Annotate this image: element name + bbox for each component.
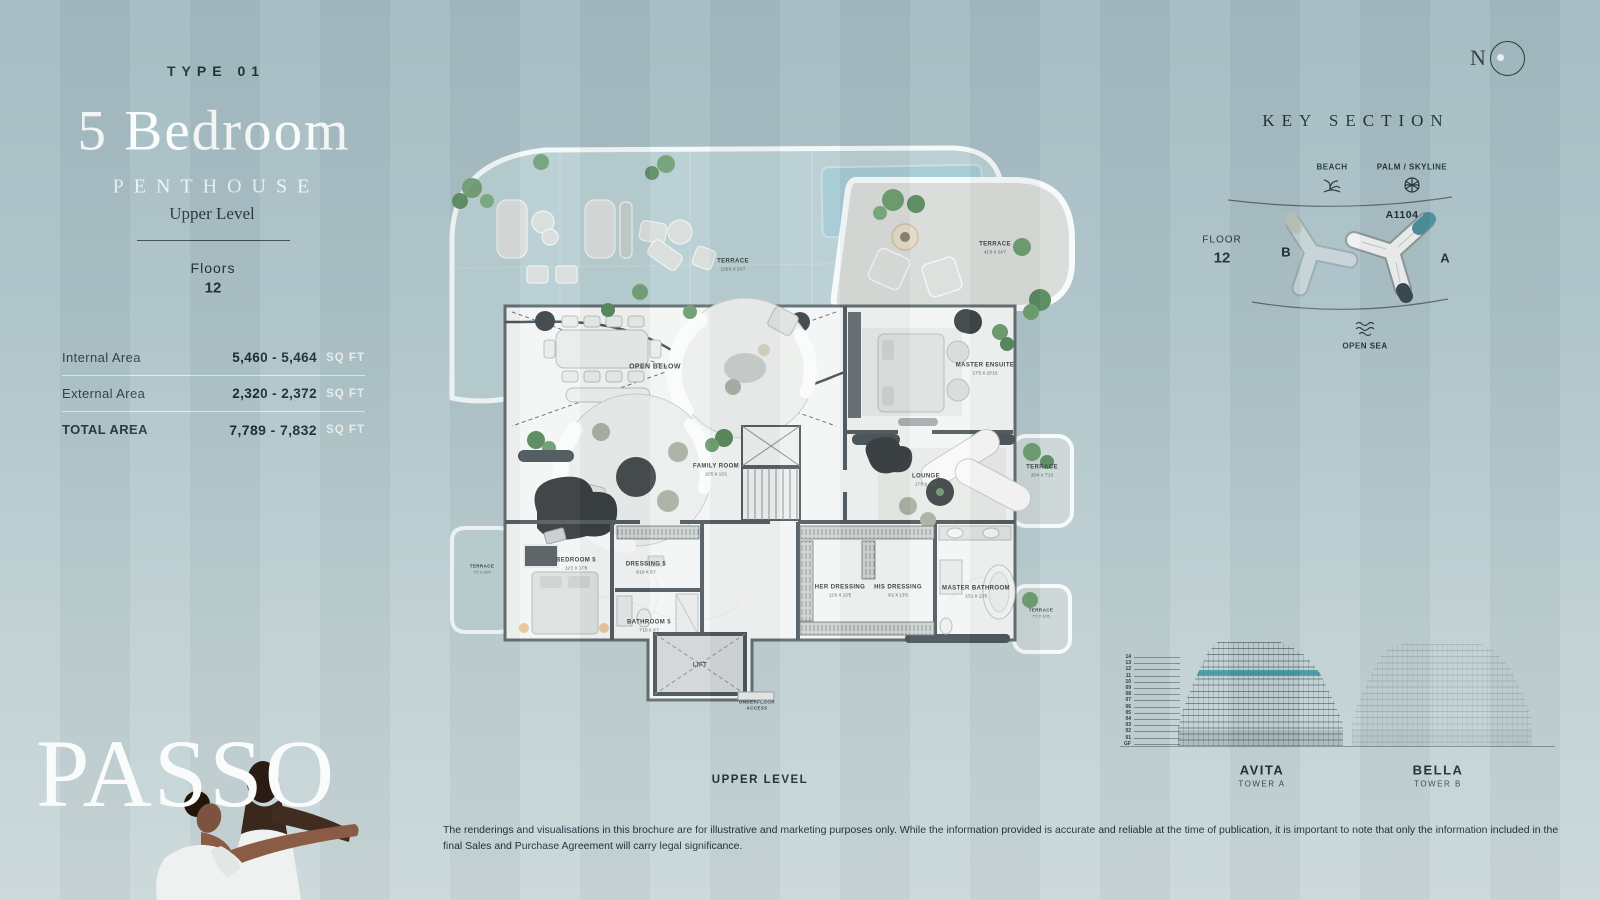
planter xyxy=(535,311,555,331)
sitting-circle-upper xyxy=(674,298,815,438)
table-row-internal: Internal Area 5,460 - 5,464 SQ FT xyxy=(62,340,365,375)
highlighted-floor-band xyxy=(1191,670,1336,676)
compass-dot xyxy=(1497,54,1504,61)
room-label-her-dressing: HER DRESSING 12'6 X 13'5 xyxy=(815,584,865,597)
tower-b-footprint xyxy=(1291,219,1350,288)
table-row-total: TOTAL AREA 7,789 - 7,832 SQ FT xyxy=(62,412,365,447)
key-floor-value: 12 xyxy=(1214,250,1231,267)
room-label-lounge: LOUNGE 17'5 X 15'1 xyxy=(912,473,940,486)
area-table: Internal Area 5,460 - 5,464 SQ FT Extern… xyxy=(62,340,365,447)
internal-area-value: 5,460 - 5,464 xyxy=(212,350,317,365)
room-label-terrace-left: TERRACE 7'2 X 16'5 xyxy=(470,564,495,575)
room-label-master-bathroom: MASTER BATHROOM 13'1 X 13'5 xyxy=(942,585,1010,598)
floors-label: Floors xyxy=(191,260,236,276)
room-label-bathroom-5: BATHROOM 5 7'10 X 6'7 xyxy=(627,619,671,632)
brand-logo: PASSO xyxy=(36,726,336,822)
terrace-top-right xyxy=(834,180,1072,320)
external-area-unit: SQ FT xyxy=(317,388,365,400)
level-label: Upper Level xyxy=(169,204,254,224)
disclaimer-text: The renderings and visualisations in thi… xyxy=(443,822,1568,855)
room-label-dressing-5: DRESSING 5 9'10 X 6'7 xyxy=(626,561,666,574)
page-title: 5 Bedroom xyxy=(78,99,351,164)
room-label-his-dressing: HIS DRESSING 9'2 X 13'5 xyxy=(874,584,922,597)
tower-a-letter: A xyxy=(1440,251,1449,266)
room-label-bedroom-5: BEDROOM 5 12'2 X 17'8 xyxy=(556,557,596,570)
total-area-value: 7,789 - 7,832 xyxy=(212,422,317,438)
unit-code-label: A1104 xyxy=(1386,209,1419,221)
room-label-terrace-main: TERRACE 126'6 X 24'7 xyxy=(717,258,749,271)
divider xyxy=(137,240,290,241)
open-sea-label: OPEN SEA xyxy=(1342,342,1387,351)
tower-b-name: BELLA xyxy=(1413,763,1464,778)
palm-icon xyxy=(1405,178,1419,192)
room-label-terrace-right: TERRACE 20'4 X 7'10 xyxy=(1026,464,1058,477)
compass-icon xyxy=(1490,41,1525,76)
room-label-master-ensuite: MASTER ENSUITE 17'5 X 23'10 xyxy=(956,362,1015,375)
compass-north-label: N xyxy=(1470,45,1486,71)
waves-icon xyxy=(1356,323,1374,336)
external-area-value: 2,320 - 2,372 xyxy=(212,386,317,401)
floor-plan xyxy=(430,125,1090,785)
room-label-terrace-top-right: TERRACE 41'0 X 24'7 xyxy=(979,241,1011,254)
shoreline-arc-top xyxy=(1228,197,1452,206)
table-row-external: External Area 2,320 - 2,372 SQ FT xyxy=(62,376,365,411)
type-label: TYPE 01 xyxy=(167,63,265,79)
tower-a-footprint xyxy=(1354,219,1429,296)
total-area-label: TOTAL AREA xyxy=(62,422,212,437)
floors-value: 12 xyxy=(205,280,222,297)
elevation-floor-scale: 14 13 12 11 10 09 08 07 06 05 04 03 02 0… xyxy=(1118,655,1180,747)
tower-a-elevation xyxy=(1178,642,1343,746)
room-label-family-room: FAMILY ROOM 15'5 X 13'1 xyxy=(693,463,739,476)
unit-highlight xyxy=(1419,219,1429,228)
tower-a-sub: TOWER A xyxy=(1238,780,1285,789)
key-floor-label: FLOOR xyxy=(1202,235,1241,246)
page-subtitle: PENTHOUSE xyxy=(113,176,320,199)
room-label-underfloor-access: UNDERFLOOR ACCESS xyxy=(730,699,784,710)
tower-a-name: AVITA xyxy=(1240,763,1285,778)
external-area-label: External Area xyxy=(62,386,212,401)
beach-icon xyxy=(1324,180,1340,192)
room-label-terrace-bottom-right: TERRACE 7'2 X 10'6 xyxy=(1029,608,1054,619)
internal-area-unit: SQ FT xyxy=(317,352,365,364)
plan-caption: UPPER LEVEL xyxy=(712,774,808,786)
staircase xyxy=(742,426,800,520)
room-label-lift: LIFT xyxy=(693,662,707,670)
shoreline-arc-bottom xyxy=(1252,299,1448,309)
tower-b-elevation xyxy=(1352,644,1532,746)
key-section-title: KEY SECTION xyxy=(1262,111,1449,131)
internal-area-label: Internal Area xyxy=(62,350,212,365)
tower-b-letter: B xyxy=(1281,245,1290,260)
tower-b-sub: TOWER B xyxy=(1414,780,1462,789)
total-area-unit: SQ FT xyxy=(317,424,365,436)
room-label-open-below: OPEN BELOW xyxy=(629,364,681,373)
ground-line xyxy=(1120,746,1555,747)
brochure-page: TYPE 01 5 Bedroom PENTHOUSE Upper Level … xyxy=(0,0,1600,900)
